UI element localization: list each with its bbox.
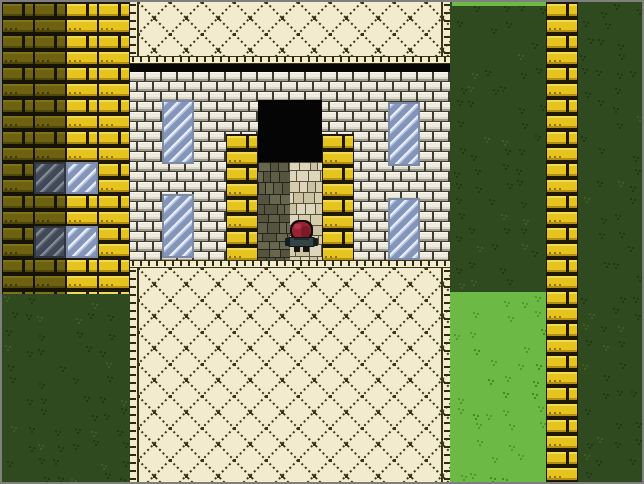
- wall-right-column: [546, 2, 578, 482]
- game-window-frame: [0, 0, 644, 484]
- grass-right-dark: [450, 2, 546, 305]
- player-head-shade: [301, 226, 310, 238]
- wall-left-shaded: [2, 2, 66, 304]
- grass-left: [2, 294, 130, 482]
- door-pillar-right: [322, 134, 354, 260]
- roof-shadow-band: [130, 64, 450, 72]
- player-leg-left: [294, 246, 300, 252]
- plaza-top-edge: [130, 56, 450, 64]
- player-head-highlight: [294, 224, 301, 229]
- grass-right-light: [450, 292, 547, 482]
- grass-right-top-lit: [452, 2, 546, 6]
- game-viewport[interactable]: [2, 2, 642, 482]
- plaza-bottom: [130, 267, 458, 482]
- player-arm-left: [285, 238, 290, 246]
- door-pillar-left: [226, 134, 258, 260]
- doorway-opening: [258, 100, 322, 162]
- grass-far-right: [578, 2, 642, 482]
- player-arm-right: [313, 238, 318, 246]
- wall-left-lit: [66, 2, 130, 304]
- player-leg-right: [303, 246, 309, 252]
- player-collar: [294, 238, 309, 240]
- plaza-bottom-edge: [130, 260, 450, 268]
